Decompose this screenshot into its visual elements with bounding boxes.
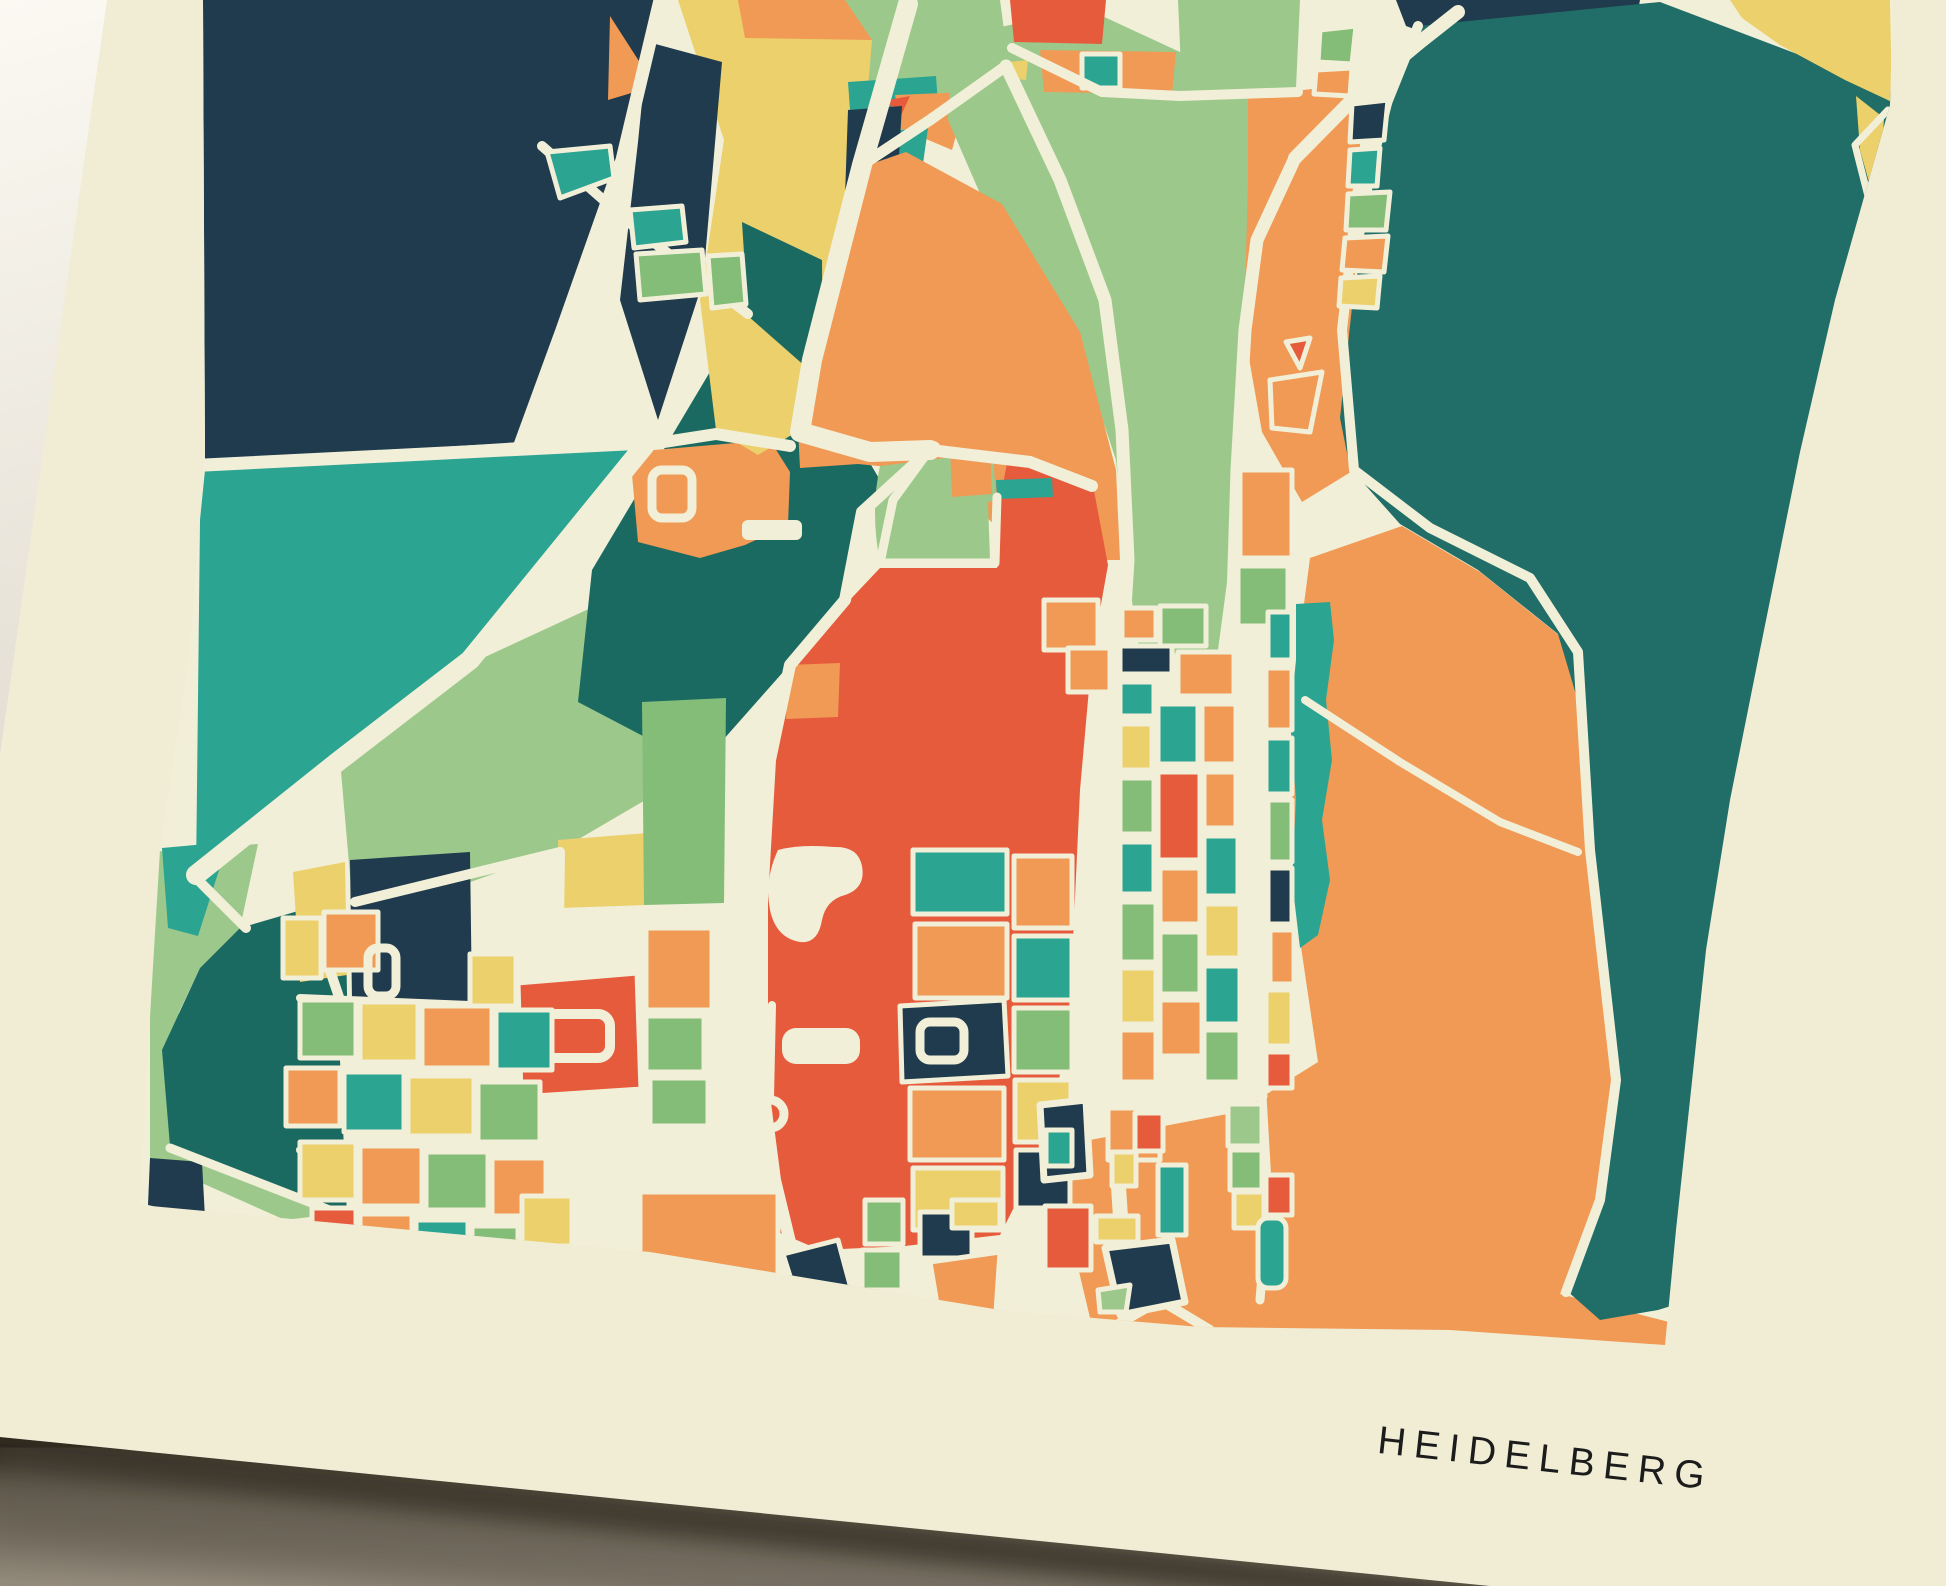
city-map <box>100 0 1946 1410</box>
poster-photo <box>0 0 1946 1586</box>
photo-scene: HEIDELBERG <box>0 0 1946 1586</box>
